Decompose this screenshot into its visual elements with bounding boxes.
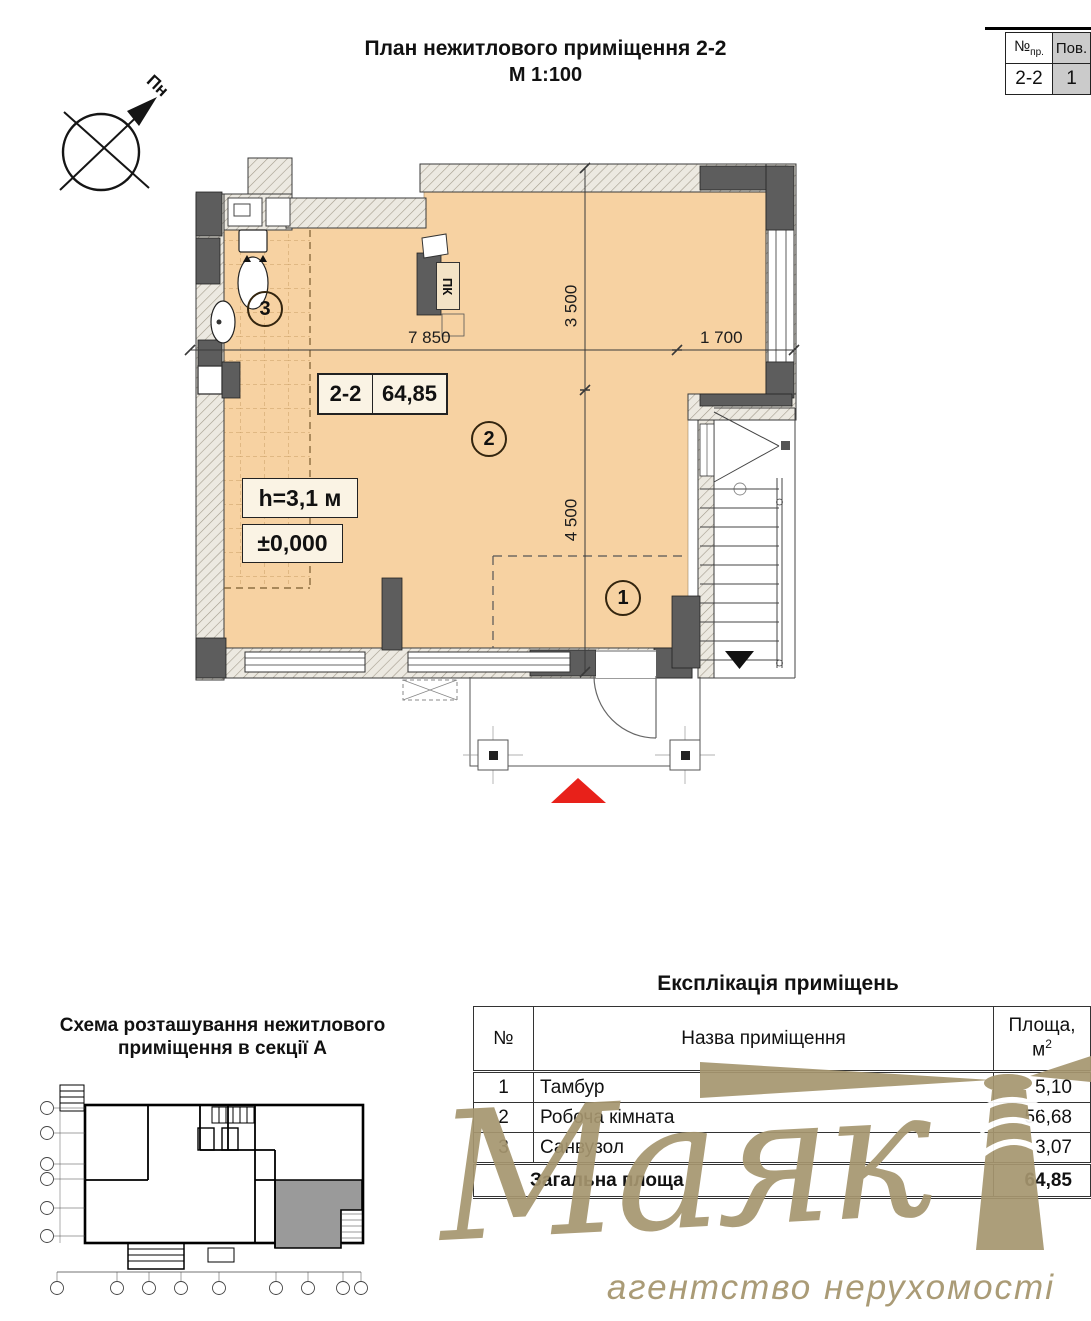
watermark-brand: Маяк xyxy=(434,1050,1091,1271)
watermark-tagline: агентство нерухомості xyxy=(560,1268,1055,1308)
